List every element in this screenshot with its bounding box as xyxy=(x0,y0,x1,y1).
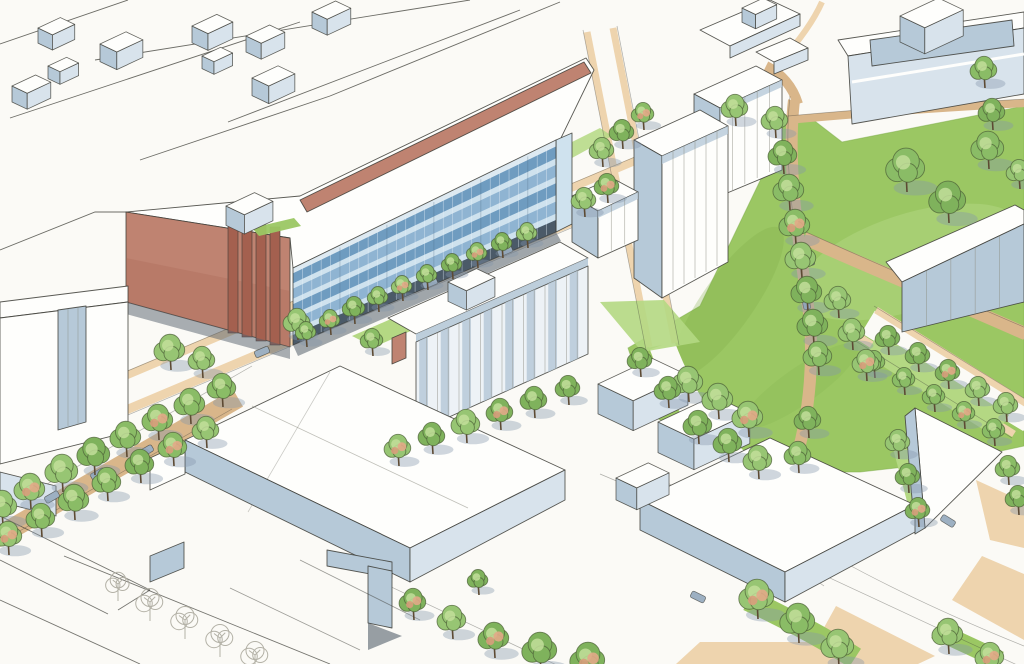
aerial-illustration xyxy=(0,0,1024,664)
brick-sliver xyxy=(392,332,406,364)
architectural-rendering xyxy=(0,0,1024,664)
